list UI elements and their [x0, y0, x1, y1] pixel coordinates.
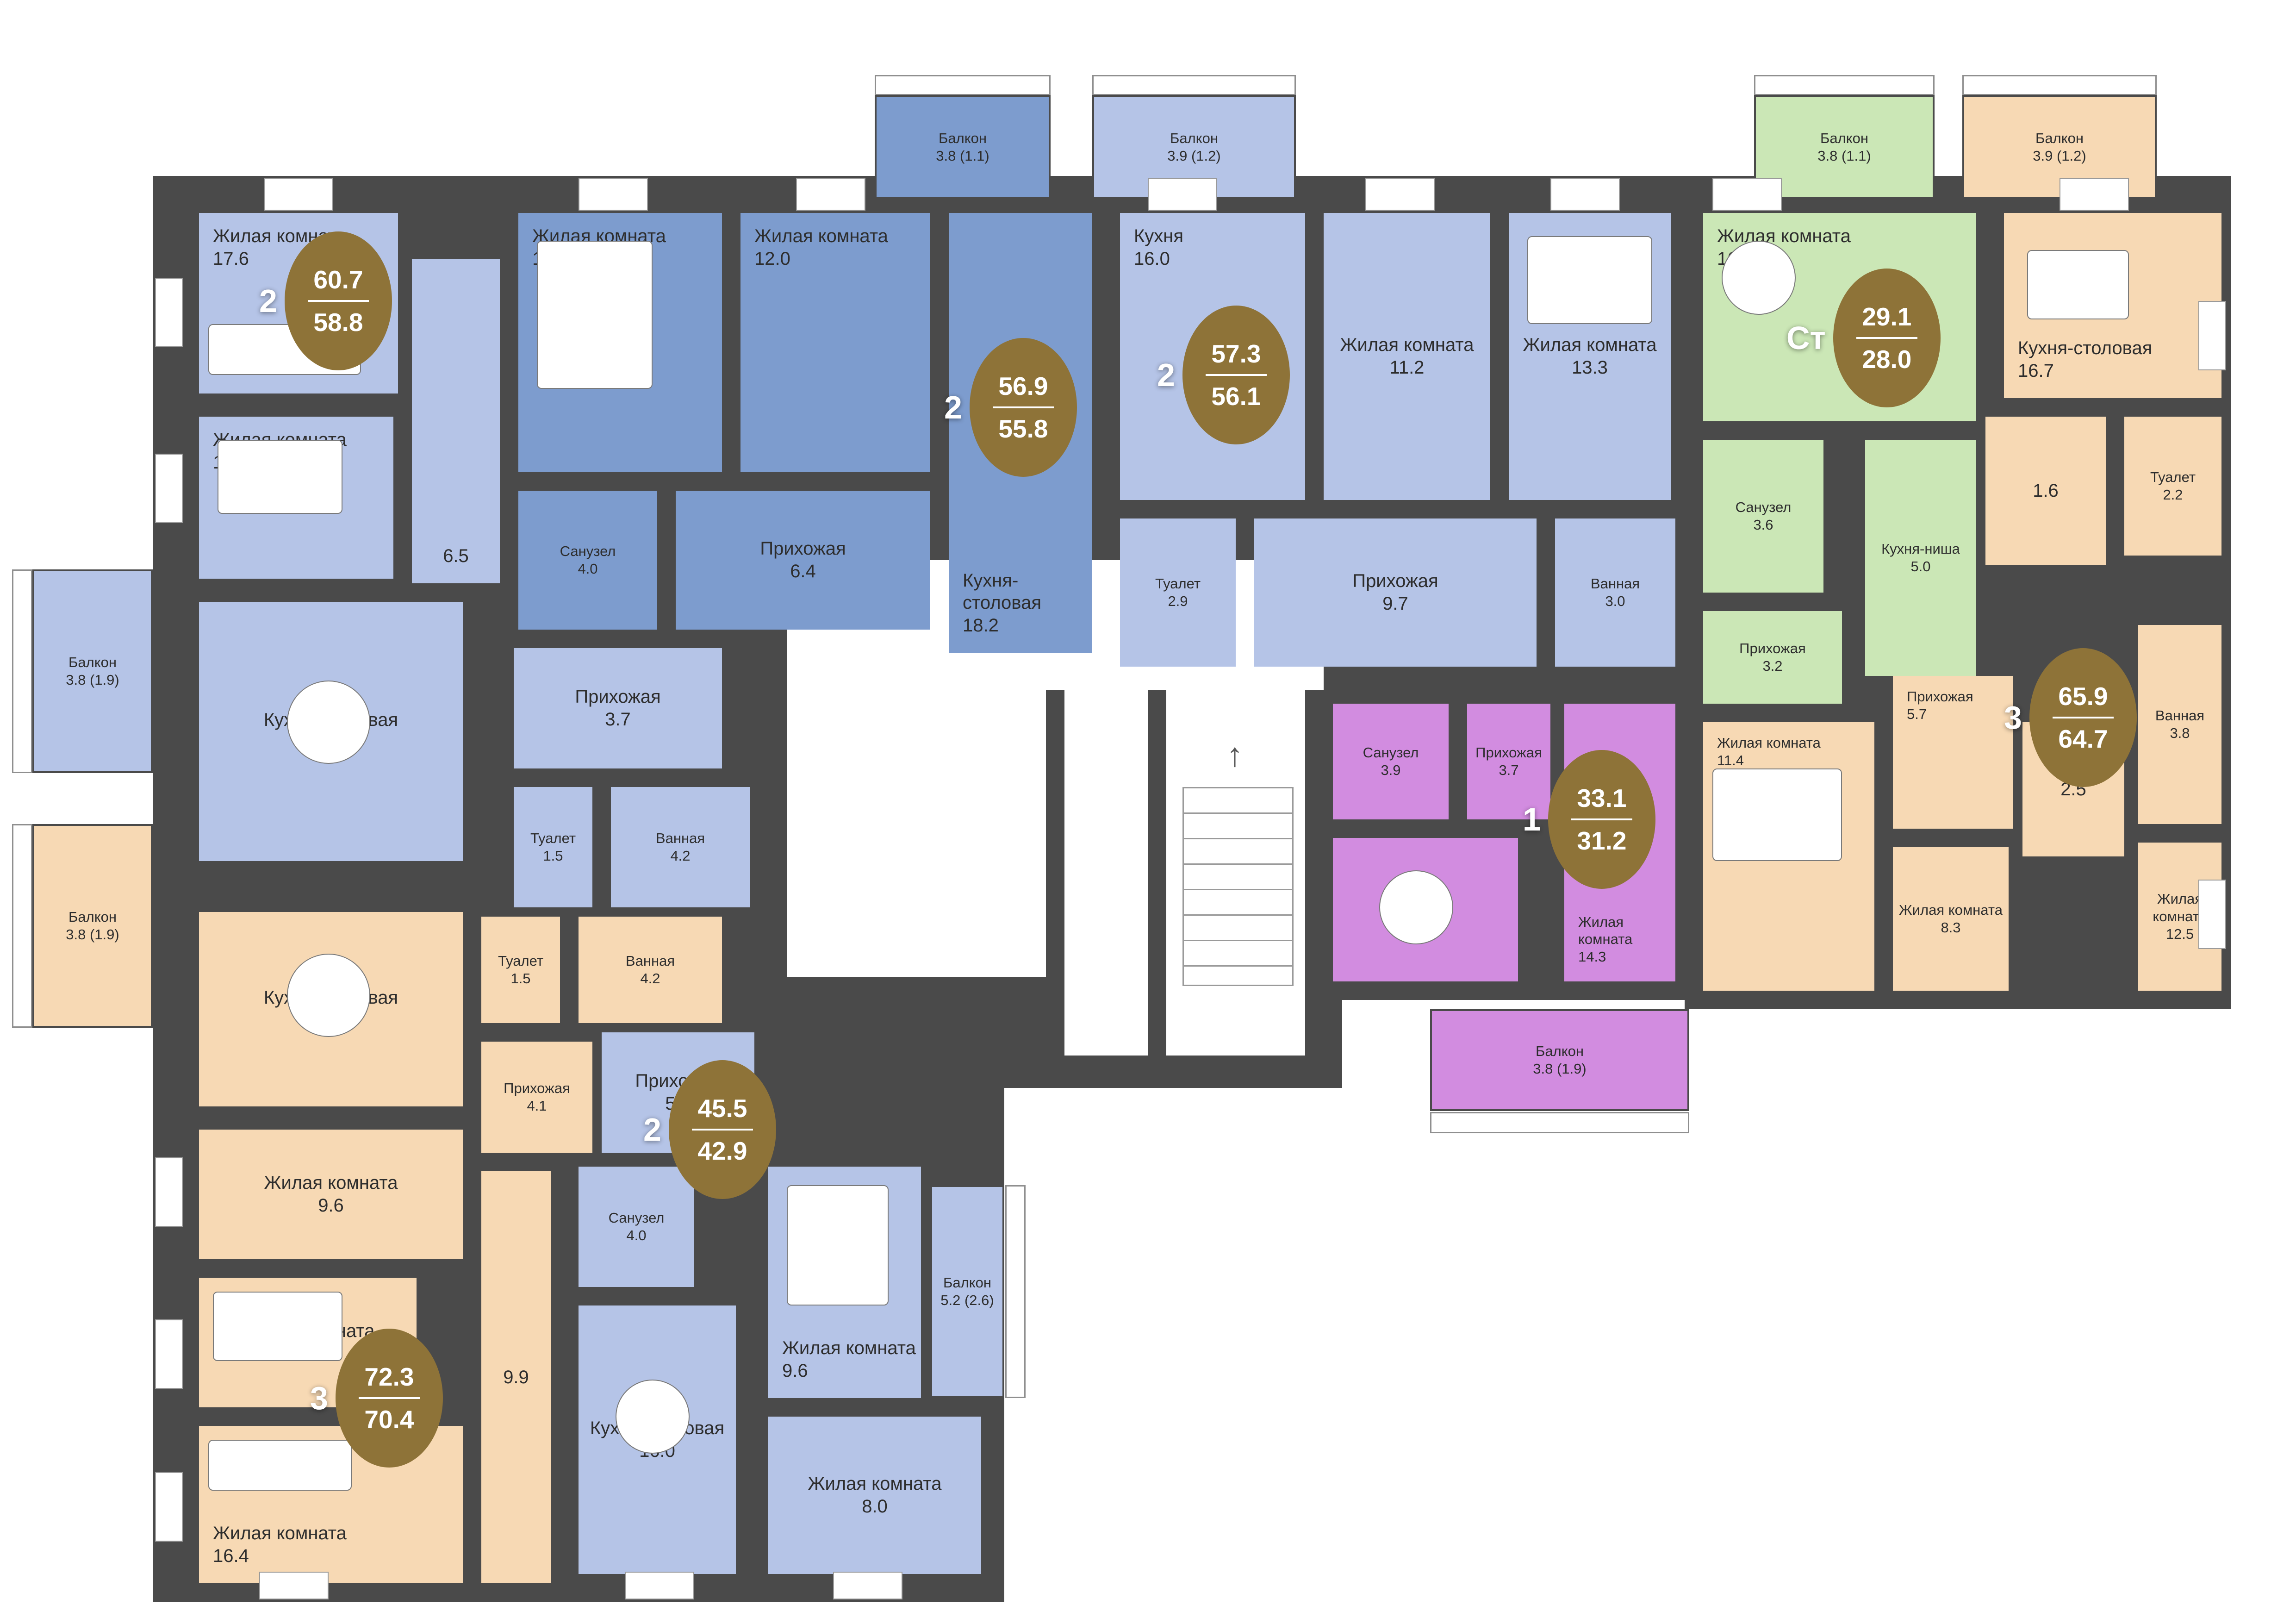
room-area: 5.0	[1910, 558, 1930, 575]
balcony-rail	[1092, 75, 1296, 95]
room-label: Туалет	[1155, 575, 1201, 593]
room-area: 16.4	[213, 1545, 458, 1568]
apartment-badge[interactable]: 1 33.1 31.2	[1523, 750, 1655, 889]
bed-icon	[787, 1185, 889, 1305]
room-bathroom: Ванная 4.2	[579, 917, 722, 1023]
room-area: 14.3	[1578, 948, 1671, 966]
room-area: 9.6	[318, 1194, 344, 1217]
room-label: Жилая комната	[1340, 334, 1474, 356]
area-oval: 60.7 58.8	[285, 231, 392, 370]
rooms-count: 2	[944, 389, 962, 426]
room-sanuzel: Санузел 4.0	[518, 491, 657, 630]
room-label: Жилая комната	[264, 1172, 398, 1194]
room-area: 8.3	[1941, 919, 1960, 937]
apartment-badge[interactable]: 2 56.9 55.8	[944, 338, 1077, 477]
staircase	[1182, 787, 1294, 986]
window	[2198, 880, 2226, 949]
area-divider	[359, 1397, 420, 1399]
room-label: Туалет	[2150, 468, 2196, 486]
window	[155, 454, 183, 523]
window	[1550, 178, 1620, 211]
room-area: 3.9	[1381, 762, 1400, 779]
room-area: 6.4	[790, 560, 816, 583]
room-label: Балкон	[939, 130, 987, 147]
room-label: Прихожая	[504, 1080, 570, 1097]
room-balcony: Балкон 3.8 (1.9)	[1430, 1009, 1689, 1111]
room-area: 9.7	[1382, 593, 1408, 615]
room-area: 4.2	[640, 970, 660, 987]
room-area: 3.7	[605, 708, 631, 731]
area-total: 29.1	[1862, 302, 1911, 331]
area-oval: 56.9 55.8	[970, 338, 1077, 477]
balcony-rail	[1005, 1185, 1026, 1398]
area-oval: 45.5 42.9	[669, 1060, 776, 1199]
window	[1365, 178, 1435, 211]
window	[155, 1157, 183, 1227]
window	[833, 1572, 902, 1599]
room-label: Кухня-ниша	[1881, 540, 1960, 558]
area-divider	[308, 300, 369, 302]
dining-table-icon	[1379, 870, 1453, 944]
area-living: 28.0	[1862, 344, 1911, 374]
room-label: Прихожая	[1352, 570, 1438, 593]
core-vestibule	[787, 690, 1046, 977]
apartment-badge[interactable]: 2 45.5 42.9	[643, 1060, 776, 1199]
area-living: 70.4	[364, 1405, 414, 1434]
room-area: 3.8 (1.1)	[936, 147, 989, 165]
room-label: Жилая комната	[754, 225, 926, 248]
room-label: Балкон	[1820, 130, 1868, 147]
room-label: Балкон	[1536, 1043, 1584, 1060]
window	[625, 1572, 694, 1599]
area-living: 55.8	[998, 414, 1048, 443]
room-label: Жилая комната	[1523, 334, 1657, 356]
room-label: Санузел	[609, 1209, 665, 1227]
apartment-badge[interactable]: 3 72.3 70.4	[310, 1329, 443, 1468]
area-living: 31.2	[1577, 826, 1626, 856]
area-living: 58.8	[313, 307, 363, 337]
room-balcony: Балкон 3.8 (1.9)	[32, 824, 153, 1028]
room-label: Жилая комната	[1578, 913, 1671, 949]
room-area: 4.0	[626, 1227, 646, 1244]
window	[155, 1472, 183, 1542]
floor-plan: ↑ Жилая комната 17.6 Жилая комната 10.1 …	[0, 0, 2296, 1624]
room-area: 3.8 (1.1)	[1817, 147, 1871, 165]
room-area: 1.5	[543, 847, 563, 865]
window	[155, 278, 183, 347]
area-total: 56.9	[998, 371, 1048, 401]
room-area: 3.2	[1762, 657, 1782, 675]
dining-table-icon	[287, 681, 370, 764]
window	[1712, 178, 1782, 211]
area-divider	[692, 1129, 753, 1131]
room-area: 18.2	[963, 614, 1088, 637]
room-area: 8.0	[862, 1495, 888, 1518]
room-sanuzel: Санузел 3.6	[1703, 440, 1823, 593]
room-label: Санузел	[560, 543, 616, 560]
stair-direction-arrow: ↑	[1226, 736, 1243, 774]
room-label: Балкон	[943, 1274, 991, 1292]
room-area: 5.7	[1907, 706, 2009, 723]
rooms-count: Ст	[1786, 319, 1826, 356]
room-label: Жилая комната	[1717, 734, 1870, 752]
rooms-count: 3	[310, 1380, 328, 1417]
room-area: 3.9 (1.2)	[1167, 147, 1220, 165]
window	[155, 1319, 183, 1389]
area-oval: 57.3 56.1	[1182, 306, 1290, 444]
room-area: 6.5	[443, 545, 469, 568]
room-hall: Прихожая 3.7	[514, 648, 722, 768]
area-total: 57.3	[1211, 339, 1261, 369]
room-area: 16.0	[1134, 248, 1300, 270]
room-living: Жилая комната 8.0	[768, 1417, 981, 1574]
rooms-count: 2	[643, 1111, 661, 1148]
room-toilet: Туалет 2.2	[2124, 417, 2221, 556]
room-area: 11.4	[1717, 752, 1870, 769]
dining-table-icon	[1722, 241, 1796, 315]
area-living: 42.9	[697, 1136, 747, 1166]
room-balcony: Балкон 3.8 (1.1)	[875, 95, 1051, 199]
area-total: 45.5	[697, 1093, 747, 1123]
area-divider	[1206, 374, 1267, 376]
room-label: Ванная	[2155, 707, 2204, 725]
area-total: 33.1	[1577, 783, 1626, 813]
room-living: Жилая комната 9.6	[199, 1130, 463, 1259]
room-area: 3.8 (1.9)	[66, 671, 119, 689]
room-area: 1.6	[2033, 480, 2059, 502]
room-corridor: 1.6	[1985, 417, 2106, 565]
room-living: Жилая комната 11.2	[1324, 213, 1490, 500]
room-bathroom: Ванная 3.8	[2138, 625, 2221, 824]
room-label: Прихожая	[1907, 688, 2009, 706]
area-oval: 33.1 31.2	[1548, 750, 1655, 889]
balcony-rail	[1754, 75, 1935, 95]
room-label: Кухня-столовая	[963, 569, 1088, 615]
room-label: Туалет	[498, 952, 543, 970]
room-area: 4.0	[578, 560, 597, 578]
room-hall: Прихожая 6.4	[676, 491, 930, 630]
room-area: 11.2	[1390, 356, 1425, 379]
bed-icon	[1527, 236, 1652, 324]
room-corridor: 9.9	[481, 1171, 551, 1583]
rooms-count: 1	[1523, 801, 1541, 838]
room-label: Санузел	[1736, 499, 1792, 516]
area-living: 56.1	[1211, 381, 1261, 411]
room-label: Ванная	[1591, 575, 1640, 593]
room-label: Жилая комната	[213, 1522, 458, 1545]
apartment-badge[interactable]: 3 65.9 64.7	[2004, 648, 2137, 787]
room-label: Прихожая	[1739, 640, 1806, 657]
room-area: 12.5	[2166, 925, 2194, 943]
room-hall: Прихожая 5.7	[1893, 676, 2013, 829]
room-label: Прихожая	[760, 537, 846, 560]
bed-icon	[218, 440, 342, 514]
rooms-count: 3	[2004, 699, 2022, 736]
room-label: Санузел	[1363, 744, 1419, 762]
balcony-rail	[1430, 1112, 1689, 1133]
bed-icon	[537, 241, 653, 389]
balcony-rail	[12, 824, 32, 1028]
room-area: 3.8 (1.9)	[1533, 1060, 1586, 1078]
core-shaft-gap	[1064, 690, 1148, 1056]
room-area: 3.8 (1.9)	[66, 926, 119, 943]
room-area: 2.9	[1168, 593, 1188, 610]
area-divider	[1571, 818, 1632, 820]
balcony-rail	[12, 569, 32, 773]
window	[1148, 178, 1217, 211]
area-divider	[1856, 337, 1917, 339]
room-area: 9.9	[503, 1366, 529, 1389]
area-oval: 72.3 70.4	[336, 1329, 443, 1468]
room-hall: Прихожая 4.1	[481, 1042, 592, 1153]
area-total: 72.3	[364, 1362, 414, 1392]
room-area: 1.5	[510, 970, 530, 987]
room-area: 5.2 (2.6)	[940, 1292, 994, 1309]
room-toilet: Туалет 2.9	[1120, 518, 1236, 667]
room-bathroom: Ванная 4.2	[611, 787, 750, 907]
rooms-count: 2	[1157, 356, 1175, 394]
room-area: 9.6	[782, 1360, 916, 1382]
window	[2198, 301, 2226, 370]
room-hall: Прихожая 9.7	[1254, 518, 1537, 667]
room-area: 3.6	[1753, 516, 1773, 534]
room-toilet: Туалет 1.5	[481, 917, 560, 1023]
area-oval: 29.1 28.0	[1833, 269, 1941, 407]
room-area: 3.8	[2170, 725, 2190, 742]
area-divider	[2053, 717, 2114, 718]
bed-icon	[1712, 768, 1842, 861]
room-area: 13.3	[1572, 356, 1608, 379]
room-corridor: 6.5	[412, 259, 500, 583]
room-toilet: Туалет 1.5	[514, 787, 592, 907]
room-label: Кухня	[1134, 225, 1300, 248]
room-area: 3.9 (1.2)	[2033, 147, 2086, 165]
room-area: 16.7	[2018, 360, 2217, 382]
room-label: Ванная	[626, 952, 675, 970]
room-label: Балкон	[68, 654, 117, 671]
room-label: Жилая комната	[1899, 901, 2003, 919]
window	[796, 178, 865, 211]
room-area: 4.1	[527, 1097, 547, 1115]
balcony-rail	[875, 75, 1051, 95]
room-label: Кухня-столовая	[2018, 337, 2217, 360]
room-living: Жилая комната 12.0	[740, 213, 930, 472]
area-divider	[993, 406, 1054, 408]
room-label: Туалет	[530, 830, 576, 847]
room-area: 3.7	[1499, 762, 1518, 779]
window	[259, 1572, 329, 1599]
room-label: Балкон	[2035, 130, 2084, 147]
dining-table-icon	[2027, 250, 2129, 319]
room-label: Прихожая	[575, 686, 660, 708]
apartment-badge[interactable]: 2 57.3 56.1	[1157, 306, 1290, 444]
room-kitchen-niche: Кухня-ниша 5.0	[1865, 440, 1976, 676]
room-balcony: Балкон 5.2 (2.6)	[930, 1185, 1004, 1398]
apartment-badge[interactable]: 2 60.7 58.8	[259, 231, 392, 370]
room-area: 4.2	[670, 847, 690, 865]
area-living: 64.7	[2058, 724, 2108, 754]
room-living: Жилая комната 8.3	[1893, 847, 2009, 991]
window	[264, 178, 333, 211]
room-balcony: Балкон 3.8 (1.9)	[32, 569, 153, 773]
window	[579, 178, 648, 211]
balcony-rail	[1962, 75, 2157, 95]
dining-table-icon	[287, 954, 370, 1037]
dining-table-icon	[616, 1380, 690, 1454]
room-label: Жилая комната	[808, 1473, 942, 1495]
window	[2060, 178, 2129, 211]
room-hall: Прихожая 3.2	[1703, 611, 1842, 704]
area-total: 60.7	[313, 265, 363, 294]
rooms-count: 2	[259, 282, 277, 319]
area-oval: 65.9 64.7	[2029, 648, 2137, 787]
room-label: Балкон	[68, 908, 117, 926]
room-sanuzel: Санузел 3.9	[1333, 704, 1449, 819]
room-label: Ванная	[656, 830, 705, 847]
area-total: 65.9	[2058, 681, 2108, 711]
apartment-badge[interactable]: Ст 29.1 28.0	[1786, 269, 1941, 407]
room-label: Жилая комната	[782, 1337, 916, 1360]
room-label: Балкон	[1170, 130, 1218, 147]
room-area: 12.0	[754, 248, 926, 270]
room-bathroom: Ванная 3.0	[1555, 518, 1675, 667]
room-area: 3.0	[1605, 593, 1625, 610]
room-area: 2.2	[2163, 486, 2183, 504]
